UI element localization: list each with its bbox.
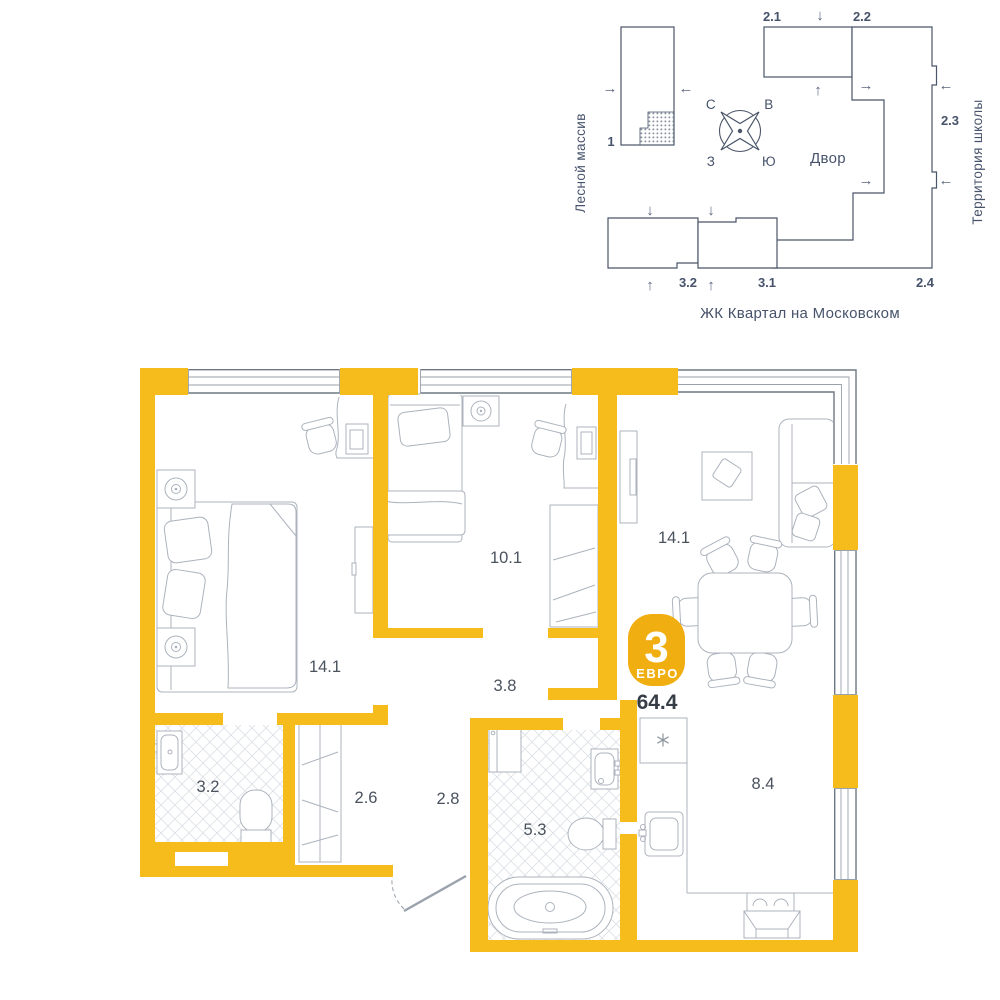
- toilet-main: [568, 818, 616, 850]
- rooms-badge: 3 ЕВРО 64.4: [628, 614, 685, 714]
- label-building-3-1: 3.1: [758, 275, 776, 290]
- site-plan: С В З Ю 1 2.1 2.2 2.3 2.4 3.1 3.2 → ← ↓ …: [560, 0, 1000, 330]
- label-courtyard: Двор: [810, 150, 846, 167]
- room-label-bathroom-main: 5.3: [524, 821, 547, 839]
- kitchen-sink: [639, 812, 683, 856]
- entrance-arrow: →: [859, 172, 874, 189]
- label-building-3-2: 3.2: [679, 275, 697, 290]
- label-forest: Лесной массив: [573, 113, 588, 213]
- bedroom1-speaker-top: [157, 470, 195, 508]
- sofa: [779, 419, 836, 547]
- bedroom1-chair: [301, 417, 340, 457]
- label-building-2-1: 2.1: [763, 9, 781, 24]
- entrance-door: [392, 876, 466, 911]
- room-label-bedroom-2: 10.1: [490, 549, 522, 567]
- compass-rose: С В З Ю: [706, 97, 776, 169]
- entrance-arrow: ←: [939, 77, 954, 94]
- room-label-hallway: 2.8: [437, 790, 460, 808]
- entrance-arrow: →: [603, 80, 618, 97]
- kitchen-counter: [639, 718, 833, 938]
- compass-east: В: [764, 97, 773, 112]
- bedroom2-bed: [383, 394, 465, 542]
- stove: [744, 893, 800, 938]
- entrance-arrow: ↓: [816, 7, 824, 24]
- room-label-wardrobe: 2.6: [355, 789, 378, 807]
- bedroom2-nightstand: [463, 396, 499, 426]
- dining-table-set: [672, 535, 818, 688]
- label-building-2-2: 2.2: [853, 9, 871, 24]
- entrance-arrow: ↓: [646, 202, 654, 219]
- building-2-1: [764, 27, 852, 77]
- bedroom1-speaker-bottom: [157, 628, 195, 666]
- sink-main: [591, 749, 620, 789]
- coffee-table: [702, 452, 752, 500]
- entrance-arrow: ←: [679, 80, 694, 97]
- kitchen-window: [834, 788, 857, 880]
- compass-north: С: [706, 97, 716, 112]
- bathroom-niche: [175, 852, 228, 866]
- building-3-2: [608, 218, 698, 268]
- toilet-small: [240, 790, 272, 843]
- entrance-arrow: ↑: [707, 277, 715, 294]
- label-school: Территория школы: [970, 99, 985, 224]
- room-label-living-room: 14.1: [658, 529, 690, 547]
- compass-south: Ю: [762, 154, 776, 169]
- bedroom2-desk: [563, 404, 598, 488]
- entrance-arrow: ↑: [814, 82, 822, 99]
- wardrobe-rail: [299, 721, 341, 862]
- room-label-kitchen: 8.4: [752, 775, 775, 793]
- label-building-1: 1: [607, 134, 614, 149]
- bedroom1-desk: [336, 397, 373, 458]
- entrance-arrow: ↓: [707, 202, 715, 219]
- living-window: [834, 550, 857, 695]
- tv-unit: [620, 431, 637, 523]
- badge-rooms-count: 3: [644, 623, 668, 672]
- bedroom1-dresser: [352, 527, 373, 613]
- entrance-arrow: ↑: [646, 277, 654, 294]
- bedroom2-wardrobe: [550, 505, 598, 627]
- building-3-1: [698, 218, 777, 268]
- bedroom2-chair: [528, 420, 567, 460]
- room-label-bedroom-1: 14.1: [309, 658, 341, 676]
- badge-layout-type: ЕВРО: [636, 666, 679, 681]
- room-label-bathroom-small: 3.2: [197, 778, 220, 796]
- bathtub: [488, 877, 613, 939]
- apartment-floor-plan: 14.1 10.1 14.1 3.8 3.2 2.6 2.8 5.3 8.4 3…: [130, 355, 870, 965]
- compass-west: З: [707, 154, 716, 169]
- label-building-2-3: 2.3: [941, 113, 959, 128]
- floorplan-card: С В З Ю 1 2.1 2.2 2.3 2.4 3.1 3.2 → ← ↓ …: [0, 0, 1000, 1000]
- entrance-arrow: →: [859, 77, 874, 94]
- sink-small: [152, 731, 182, 774]
- label-building-2-4: 2.4: [916, 275, 935, 290]
- badge-total-area: 64.4: [637, 691, 678, 714]
- room-label-hall: 3.8: [494, 677, 517, 695]
- entrance-arrow: ←: [939, 172, 954, 189]
- dining-table: [698, 573, 792, 653]
- washing-machine: [489, 726, 521, 772]
- label-complex-name: ЖК Квартал на Московском: [700, 305, 900, 322]
- building-1: [621, 27, 674, 145]
